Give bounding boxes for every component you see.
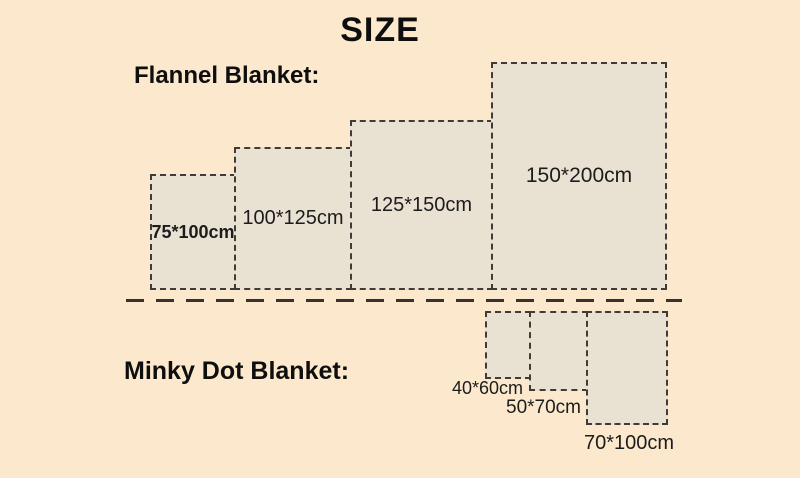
- size-label: 70*100cm: [584, 432, 674, 455]
- flannel-swatch-150x200: 150*200cm: [491, 62, 667, 290]
- page-title: SIZE: [340, 11, 420, 50]
- size-label: 100*125cm: [242, 207, 343, 230]
- flannel-swatch-75x100: 75*100cm: [150, 174, 236, 290]
- size-label: 125*150cm: [371, 194, 472, 217]
- flannel-swatch-100x125: 100*125cm: [234, 147, 352, 290]
- flannel-section-label: Flannel Blanket:: [134, 62, 319, 90]
- size-label: 150*200cm: [526, 164, 632, 188]
- flannel-swatch-125x150: 125*150cm: [350, 120, 493, 290]
- minky-swatch-40x60: [485, 311, 531, 379]
- minky-swatch-70x100: [586, 311, 668, 425]
- size-chart-infographic: SIZE Flannel Blanket: 75*100cm 100*125cm…: [0, 0, 800, 478]
- size-label: 75*100cm: [151, 222, 234, 243]
- size-label: 50*70cm: [506, 397, 581, 419]
- size-label: 40*60cm: [452, 378, 523, 399]
- minky-section-label: Minky Dot Blanket:: [124, 357, 349, 386]
- minky-swatch-50x70: [529, 311, 588, 391]
- section-divider-dashed-line: [126, 299, 682, 302]
